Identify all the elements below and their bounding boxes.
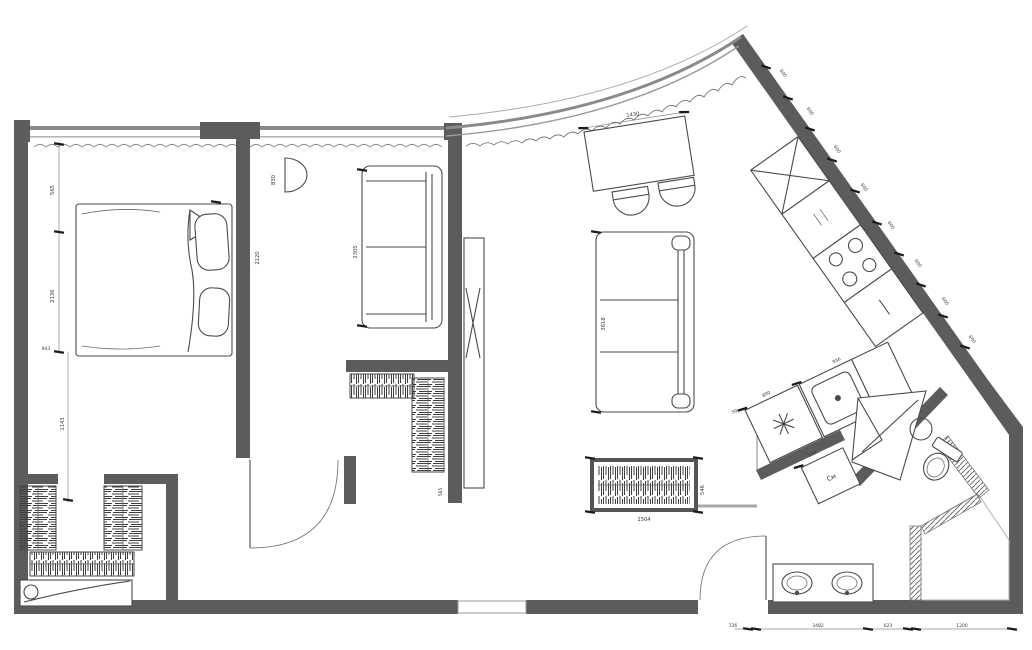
wall-closet2-stub	[344, 456, 356, 504]
dim-label: 600	[832, 144, 842, 155]
dim-label: 1430	[626, 111, 640, 119]
floor-plan-drawing: 1430	[0, 0, 1032, 650]
faucet-dot	[845, 591, 849, 595]
pillow	[194, 213, 230, 271]
bottom-dim-chain: 726 3482 623 1200	[729, 623, 1017, 634]
tv-console	[464, 238, 484, 488]
sofa-body	[596, 232, 694, 412]
dim-label: 565	[438, 488, 444, 497]
tv-icon	[466, 288, 480, 358]
floor-plan-page: 1430	[0, 0, 1032, 650]
chair	[612, 186, 652, 217]
dim-label: 600	[913, 258, 923, 269]
pier-left	[14, 120, 30, 142]
pier-mid	[200, 122, 260, 139]
dim-label: 600	[940, 296, 950, 307]
tv-wall	[464, 238, 484, 488]
wall-closet2-top	[346, 360, 458, 372]
dim-label: 50	[731, 408, 739, 416]
dim-tick	[679, 107, 689, 117]
sofa-armrest	[672, 236, 690, 250]
dim-tick	[911, 624, 921, 634]
bottom-wall-inset	[458, 601, 526, 613]
dim-label: 1200	[956, 623, 968, 629]
dim-label: 2305	[353, 245, 359, 258]
dim-label: 600	[886, 220, 896, 231]
dim-label: 600	[778, 68, 788, 79]
dim-label: 1143	[60, 417, 66, 430]
wall-closet-stub-a	[28, 474, 58, 484]
chair	[658, 177, 698, 208]
dim-tick	[863, 624, 873, 634]
entrance-door	[700, 536, 766, 600]
dim-label: 843	[42, 346, 51, 352]
dim-label: 830	[271, 175, 277, 185]
dim-label: 3618	[601, 317, 607, 330]
dim-label: 623	[884, 623, 893, 629]
room2-door	[250, 460, 338, 548]
dim-label: 3482	[812, 623, 824, 629]
shower-tray	[852, 391, 926, 480]
wall-basin	[285, 158, 307, 192]
door-swing	[700, 536, 766, 600]
wall-room2-living	[448, 138, 462, 503]
wall-bottom-mid	[526, 600, 698, 614]
glazing-sill-outer	[449, 26, 747, 117]
sofa-armrest	[672, 394, 690, 408]
bench	[20, 580, 132, 606]
dim-label: 2136	[50, 289, 56, 302]
bed	[76, 204, 232, 356]
wall-closet-room	[166, 474, 178, 600]
dim-label: 600	[967, 334, 977, 345]
dim-label: 600	[805, 106, 815, 117]
walkin-closet-bedroom	[20, 486, 142, 606]
door-swing	[250, 460, 338, 548]
room2	[285, 158, 444, 472]
dining-table: 1430	[577, 103, 699, 192]
toilet	[916, 437, 963, 487]
dim-label: 600	[859, 182, 869, 193]
hatched-band-top	[921, 494, 981, 534]
living-room: 1430	[577, 103, 703, 517]
vanity-counter	[773, 564, 873, 602]
bedroom	[20, 204, 232, 606]
faucet-dot	[795, 591, 799, 595]
curved-glazing	[446, 26, 747, 136]
pillow	[198, 287, 230, 337]
dim-label: 565	[50, 185, 56, 195]
dim-label: 2120	[255, 251, 261, 264]
sofa-small	[362, 166, 442, 328]
walkin-closet-room2	[350, 374, 444, 472]
sideboard	[585, 453, 703, 517]
glazing-main	[446, 37, 741, 128]
hatched-band-left	[910, 526, 921, 600]
corner-shaft	[910, 436, 1009, 600]
dim-tick	[1007, 624, 1017, 634]
dim-label: 546	[700, 485, 706, 495]
wall-closet-stub-b	[104, 474, 178, 484]
dim-label: 1504	[637, 517, 651, 523]
wall-bedroom-room2	[236, 138, 250, 458]
shower	[852, 391, 926, 480]
dim-label: 726	[729, 623, 738, 629]
chair-back	[612, 186, 649, 200]
vanity-double	[773, 564, 873, 602]
dim-tick	[751, 624, 761, 634]
